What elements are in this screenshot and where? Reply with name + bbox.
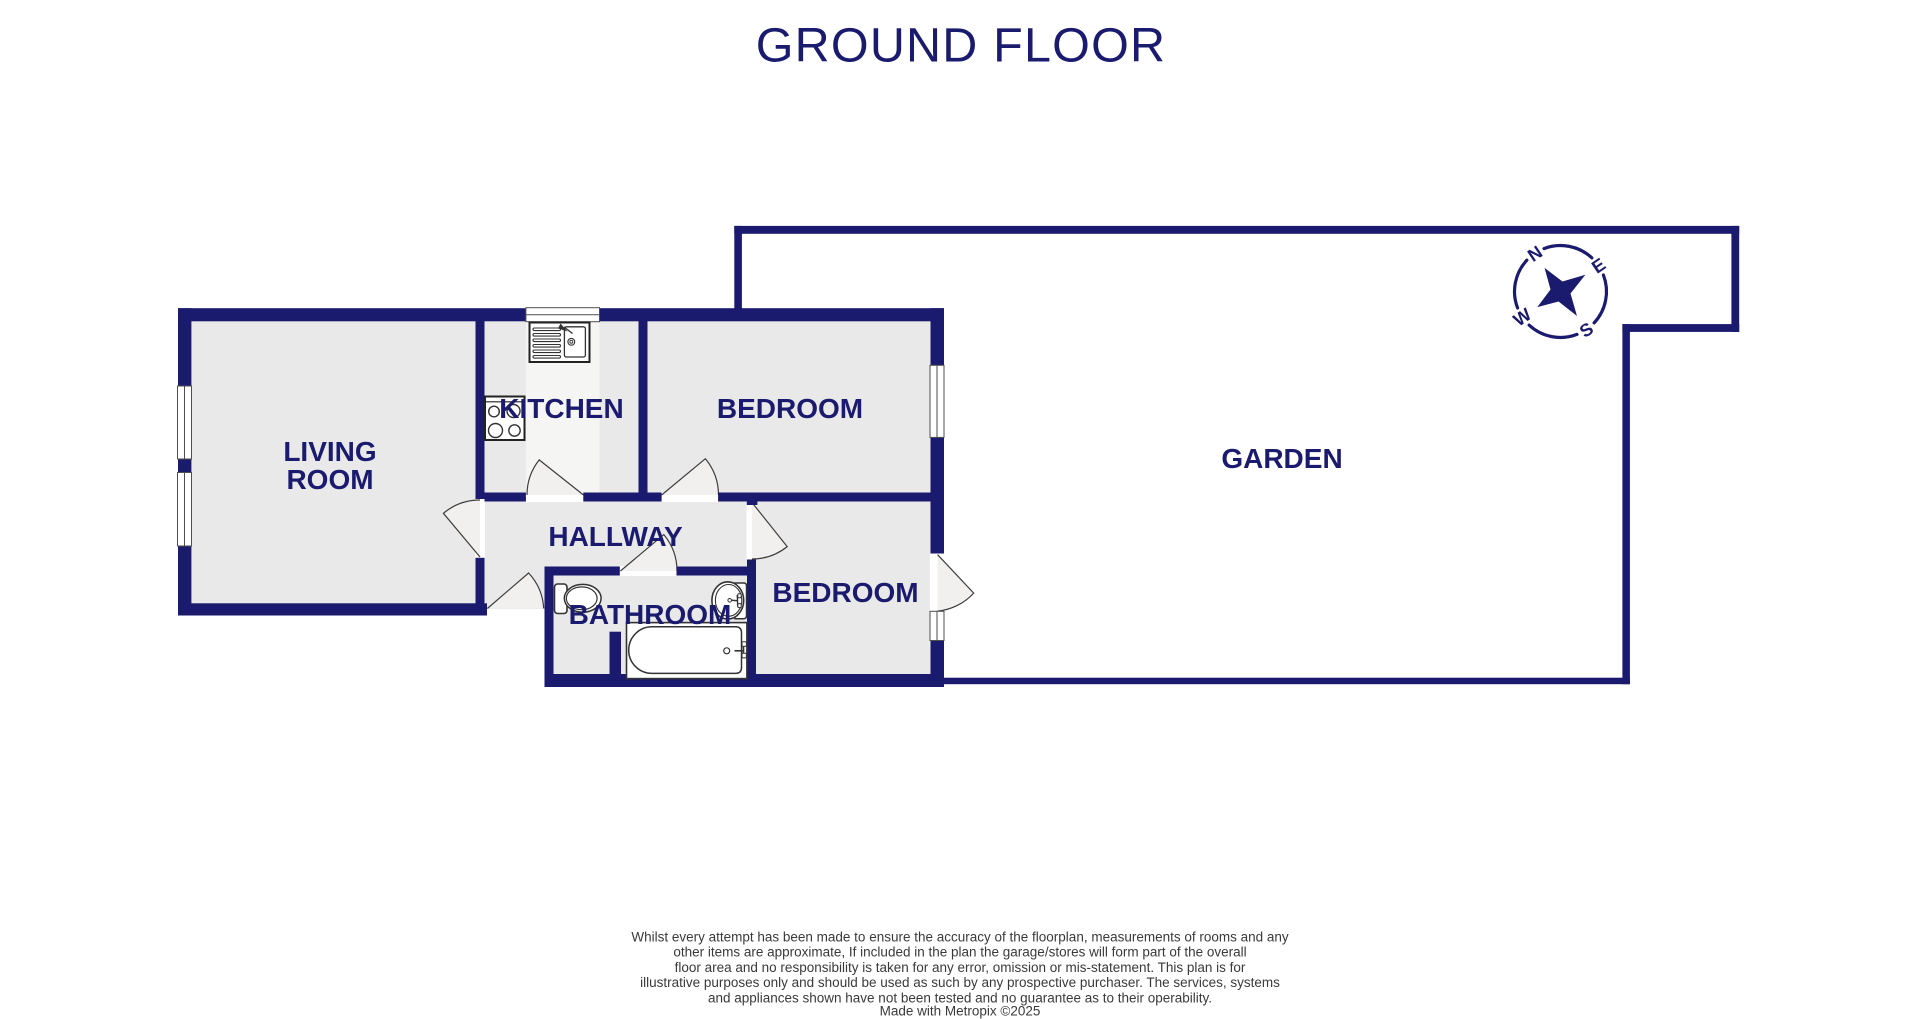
svg-text:BEDROOM: BEDROOM [772,577,918,608]
svg-text:other items are approximate, I: other items are approximate, If included… [673,945,1246,960]
svg-text:BATHROOM: BATHROOM [569,599,732,630]
svg-text:GROUND FLOOR: GROUND FLOOR [756,19,1167,73]
svg-text:LIVING: LIVING [283,436,376,467]
svg-text:illustrative purposes only and: illustrative purposes only and should be… [640,975,1280,990]
svg-text:HALLWAY: HALLWAY [548,521,683,552]
svg-text:ROOM: ROOM [286,464,373,495]
svg-text:floor area and no responsibili: floor area and no responsibility is take… [675,960,1246,975]
svg-text:Made with Metropix ©2025: Made with Metropix ©2025 [880,1004,1041,1019]
svg-text:BEDROOM: BEDROOM [717,393,863,424]
svg-text:KITCHEN: KITCHEN [499,393,623,424]
svg-text:Whilst every attempt has been: Whilst every attempt has been made to en… [631,930,1289,945]
svg-text:GARDEN: GARDEN [1221,443,1342,474]
